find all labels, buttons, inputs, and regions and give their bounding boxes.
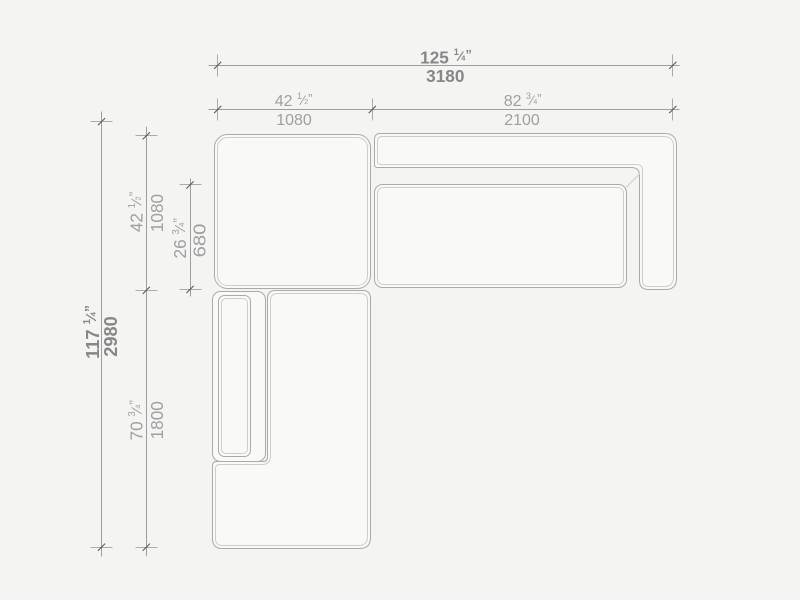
svg-text:1080: 1080 [276,112,312,129]
svg-text:1800: 1800 [147,401,167,439]
svg-text:680: 680 [190,224,209,258]
svg-text:3180: 3180 [426,66,464,86]
svg-text:2980: 2980 [101,316,121,356]
svg-text:1080: 1080 [147,194,167,232]
svg-text:2100: 2100 [504,112,540,129]
